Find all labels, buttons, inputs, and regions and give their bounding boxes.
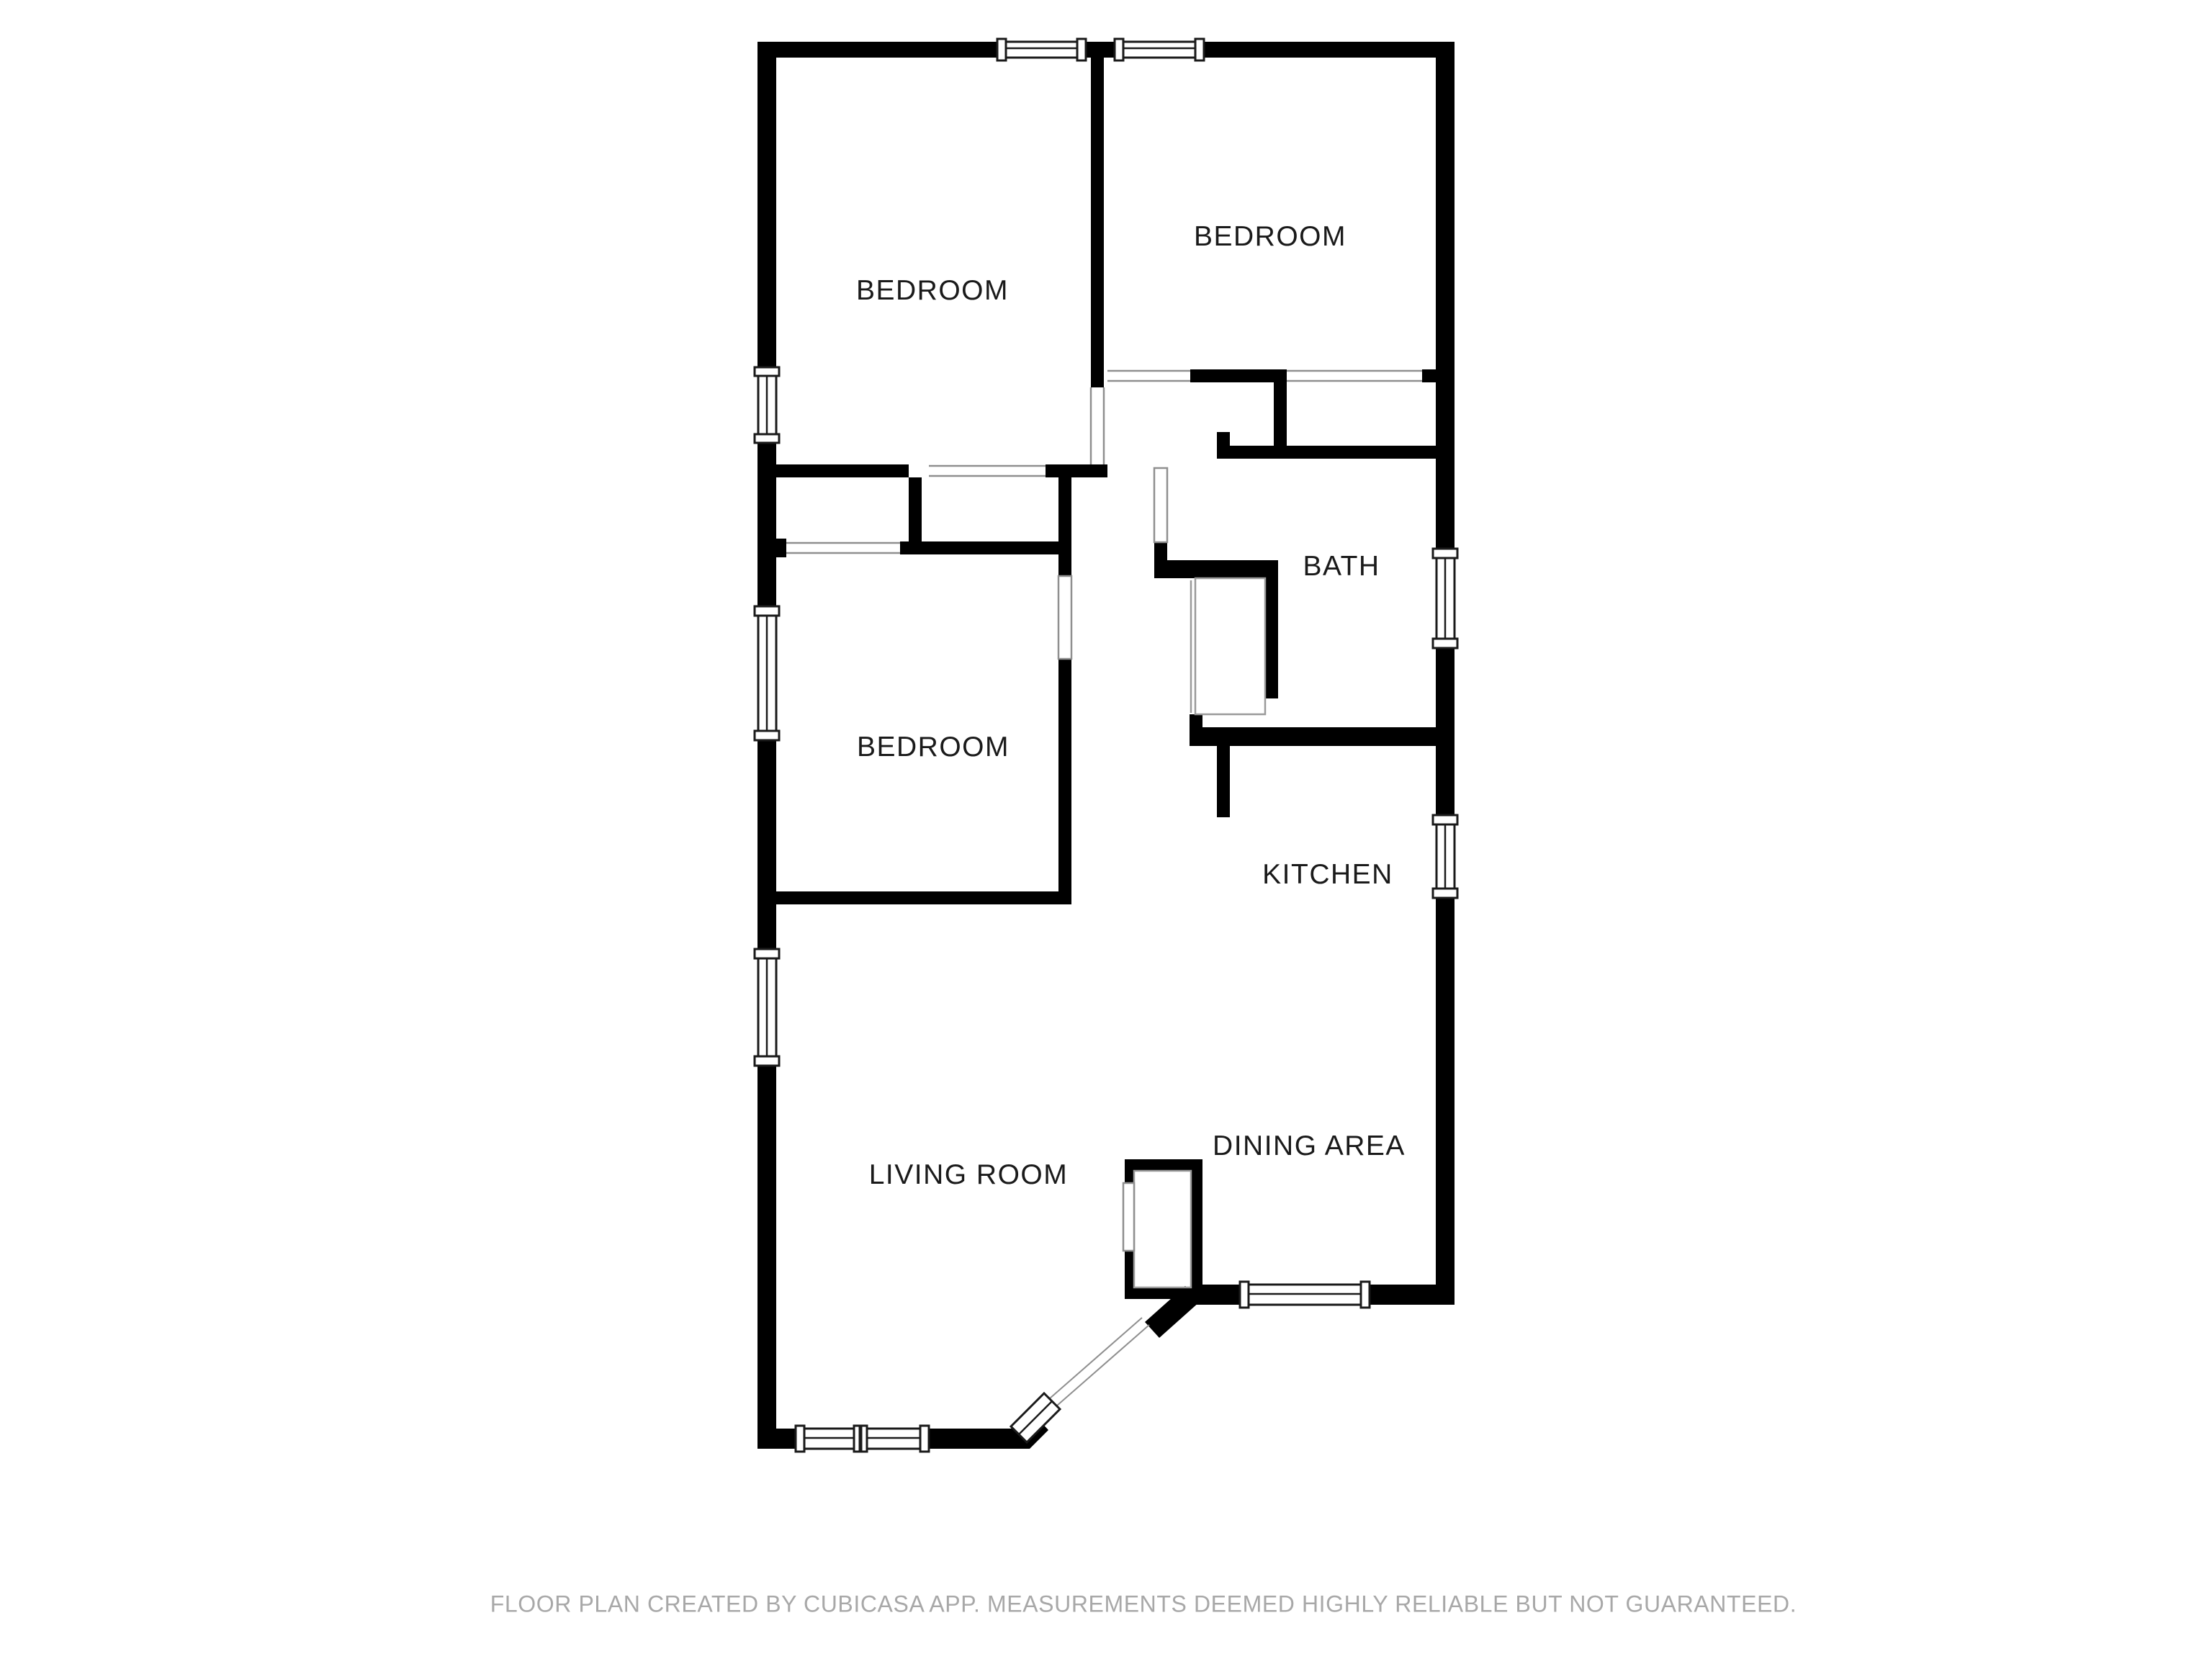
wall-closet-jamb-left: [776, 539, 786, 557]
shower-enclosure: [1154, 560, 1278, 714]
wall-hall-stub: [1217, 432, 1230, 446]
shower-inner-outline: [1195, 578, 1265, 714]
room-label-kitchen: KITCHEN: [1262, 859, 1393, 891]
entry-closet: [1123, 1159, 1202, 1299]
door-opening-bedroom-tr: [1107, 369, 1190, 382]
floor-plan-canvas: BEDROOM BEDROOM BATH BEDROOM KITCHEN LIV…: [0, 0, 2212, 1659]
closet-wall-left-upper: [1125, 1159, 1134, 1183]
closet-wall-right: [1191, 1159, 1202, 1289]
door-leaf-bath: [1154, 468, 1167, 542]
wall-right: [1436, 42, 1455, 1305]
closet-inner-outline: [1134, 1171, 1191, 1287]
wall-top: [757, 42, 1455, 58]
closet-opening-bedroom-tr: [1287, 369, 1422, 382]
window-dining-bottom: [1240, 1282, 1370, 1308]
window-left-2: [755, 606, 779, 740]
closet-opening-bedroom-mid: [786, 541, 900, 554]
room-label-bedroom-middle: BEDROOM: [857, 732, 1010, 763]
interior-walls: [776, 42, 1436, 904]
door-opening-bedroom-tl: [1091, 387, 1104, 464]
closet-wall-top: [1125, 1159, 1202, 1171]
room-label-bath: BATH: [1303, 551, 1380, 583]
wall-bedroom-mid-bottom: [776, 891, 1071, 904]
wall-bath-west-return: [1154, 542, 1167, 560]
wall-closet-tr-left: [1274, 369, 1287, 459]
closet-wall-left-lower: [1125, 1251, 1134, 1299]
room-label-bedroom-top-right: BEDROOM: [1194, 221, 1346, 253]
closet-door-opening: [1123, 1183, 1134, 1251]
wall-bedroom-divider: [1091, 42, 1104, 387]
wall-closet-tl-left: [909, 477, 922, 541]
wall-bedroom-tr-bottom-stub: [1422, 369, 1436, 382]
wall-bedroom-mid-right-lower: [1058, 659, 1071, 904]
wall-bedroom-tr-bottom: [1190, 369, 1274, 382]
wall-bath-top: [1217, 446, 1436, 459]
wall-kitchen-stub: [1217, 746, 1230, 817]
window-top-1: [997, 39, 1086, 60]
window-right-bath: [1433, 549, 1457, 648]
window-right-kitchen: [1433, 815, 1457, 898]
window-top-2: [1115, 39, 1204, 60]
window-left-3: [755, 949, 779, 1066]
shower-wall-right: [1265, 560, 1278, 698]
wall-bath-bottom: [1190, 727, 1436, 746]
window-living-bottom: [796, 1426, 929, 1452]
wall-bedroom-mid-right-upper: [1058, 464, 1071, 576]
window-left-1: [755, 367, 779, 443]
wall-shower-bottom-piece: [1190, 714, 1202, 727]
floor-plan-drawing: [0, 0, 2212, 1659]
closet-wall-bottom: [1125, 1287, 1202, 1299]
door-opening-bedroom-mid: [1058, 576, 1071, 659]
closet-opening-bedroom-tl: [929, 464, 1046, 477]
wall-bedroom-tl-bottom-b: [1046, 464, 1107, 477]
footer-disclaimer: FLOOR PLAN CREATED BY CUBICASA APP. MEAS…: [490, 1591, 1797, 1618]
wall-bedroom-mid-top: [900, 541, 1071, 554]
room-label-living-room: LIVING ROOM: [869, 1159, 1069, 1191]
wall-bedroom-tl-bottom-a: [776, 464, 909, 477]
door-opening-entry-diagonal: [1050, 1318, 1149, 1406]
room-label-dining-area: DINING AREA: [1213, 1130, 1406, 1162]
room-label-bedroom-top-left: BEDROOM: [856, 275, 1009, 307]
wall-left: [757, 42, 776, 1449]
window-entry-angled: [1011, 1393, 1060, 1442]
shower-wall-top: [1154, 560, 1278, 578]
